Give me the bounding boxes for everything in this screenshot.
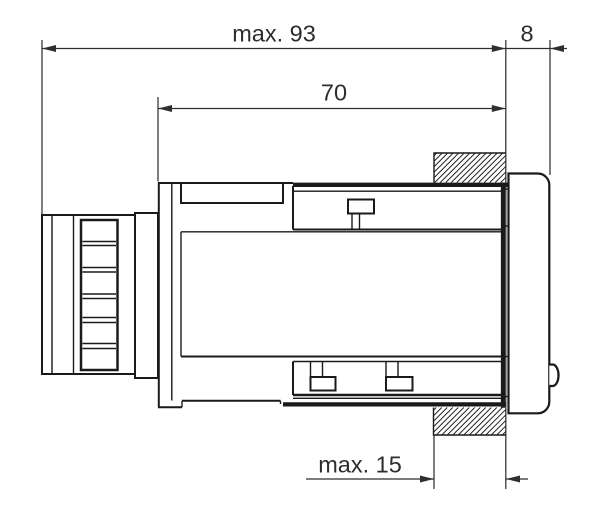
front-bezel <box>509 174 559 414</box>
dimension-label-bezel-depth: 8 <box>520 21 533 47</box>
terminal-dividers <box>83 242 117 349</box>
arrow-left-icon <box>158 105 172 112</box>
case-body <box>158 183 509 408</box>
top-recess <box>181 184 283 203</box>
panel-cross-section-top <box>434 153 506 183</box>
dimension-label-overall-length: max. 93 <box>232 21 316 47</box>
dimension-bezel-depth: 8 <box>506 21 567 53</box>
panel-cross-section-bottom <box>434 408 506 436</box>
dimension-label-case-length: 70 <box>321 80 347 106</box>
hatch-area-top <box>434 153 506 183</box>
mounting-clip-bottom-1 <box>311 362 336 391</box>
dimension-label-panel-thickness: max. 15 <box>318 452 402 478</box>
terminal-block <box>42 213 158 378</box>
top-compartment <box>293 186 505 230</box>
hatch-area-bottom <box>434 408 506 436</box>
technical-drawing: max. 93 8 70 max. 15 <box>0 0 600 506</box>
arrow-left-icon <box>506 476 520 483</box>
dimension-panel-thickness: max. 15 <box>306 452 528 483</box>
mounting-clip-top <box>348 200 374 214</box>
arrow-right-icon <box>492 105 506 112</box>
dimension-case-length: 70 <box>158 80 506 113</box>
arrow-left-icon <box>550 45 564 52</box>
arrow-left-icon <box>42 45 56 52</box>
dimension-drawing-canvas: max. 93 8 70 max. 15 <box>0 0 600 506</box>
bottom-profile <box>158 401 506 407</box>
mounting-clip-bottom-2 <box>386 362 413 391</box>
dimension-overall-length: max. 93 <box>42 21 506 53</box>
bottom-compartment <box>293 362 505 399</box>
arrow-right-icon <box>492 45 506 52</box>
inner-cavity <box>181 232 505 357</box>
terminal-block-step <box>135 213 158 378</box>
arrow-right-icon <box>420 476 434 483</box>
front-button <box>549 365 558 387</box>
terminal-strip <box>81 220 118 370</box>
